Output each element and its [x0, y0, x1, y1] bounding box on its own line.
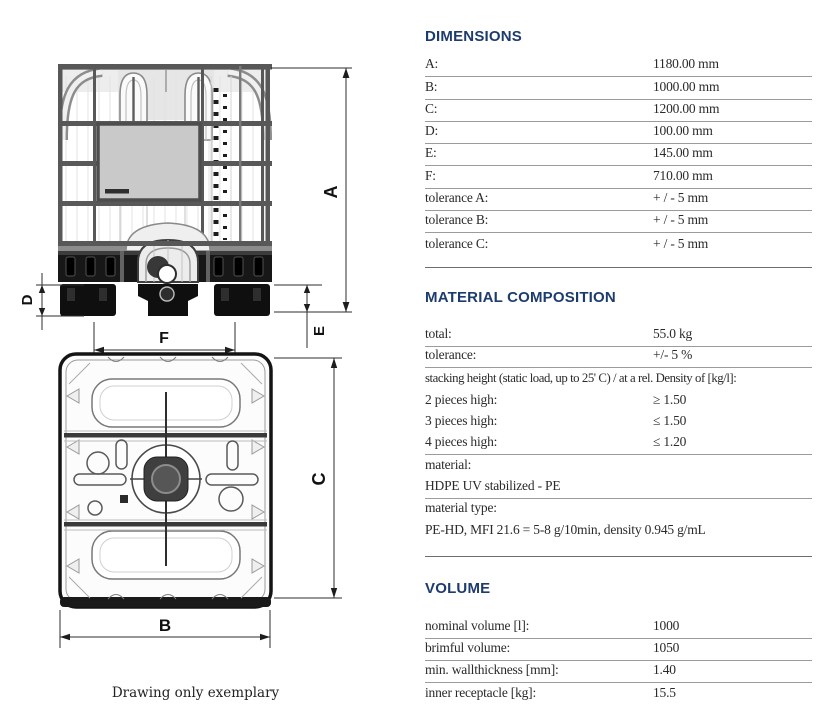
spec-row: 4 pieces high:≤ 1.20 — [425, 433, 812, 455]
row-label: 4 pieces high: — [425, 434, 497, 450]
row-label: total: — [425, 326, 452, 342]
row-label: tolerance C: — [425, 236, 488, 252]
row-label: nominal volume [l]: — [425, 618, 529, 634]
row-value: + / - 5 mm — [653, 236, 708, 252]
row-label: 3 pieces high: — [425, 413, 497, 429]
spec-row: A:1180.00 mm — [425, 55, 812, 77]
row-label: D: — [425, 123, 438, 139]
row-label: material type: — [425, 500, 497, 516]
spec-row: tolerance:+/- 5 % — [425, 347, 812, 369]
section-divider — [425, 267, 812, 268]
spec-row: total:55.0 kg — [425, 325, 812, 347]
ibc-top-view — [60, 354, 271, 607]
row-label: E: — [425, 145, 437, 161]
section-volume: VOLUME nominal volume [l]:1000 brimful v… — [425, 580, 812, 705]
spec-row: E:145.00 mm — [425, 144, 812, 166]
row-label: B: — [425, 79, 437, 95]
spec-row: material type: — [425, 499, 812, 521]
row-label: PE-HD, MFI 21.6 = 5-8 g/10min, density 0… — [425, 522, 706, 538]
row-value: 55.0 kg — [653, 326, 692, 342]
row-label: C: — [425, 101, 437, 117]
row-value: + / - 5 mm — [653, 212, 708, 228]
spec-row: C:1200.00 mm — [425, 100, 812, 122]
label-plate — [98, 124, 200, 200]
pallet-feet — [60, 284, 270, 316]
row-value: 1180.00 mm — [653, 56, 719, 72]
row-value: ≤ 1.20 — [653, 434, 686, 450]
row-value: 100.00 mm — [653, 123, 713, 139]
row-value: +/- 5 % — [653, 347, 692, 363]
drawing-caption: Drawing only exemplary — [58, 685, 333, 701]
section-title-material: MATERIAL COMPOSITION — [425, 289, 812, 306]
row-label: tolerance B: — [425, 212, 488, 228]
spec-row: brimful volume:1050 — [425, 639, 812, 661]
dim-label-A: A — [321, 186, 341, 199]
spec-row: tolerance B:+ / - 5 mm — [425, 211, 812, 233]
row-label: 2 pieces high: — [425, 392, 497, 408]
spec-row: PE-HD, MFI 21.6 = 5-8 g/10min, density 0… — [425, 520, 812, 542]
spec-row: 2 pieces high:≥ 1.50 — [425, 390, 812, 412]
spec-row: 3 pieces high:≤ 1.50 — [425, 412, 812, 434]
row-value: 1050 — [653, 640, 679, 656]
row-value: 1.40 — [653, 662, 676, 678]
row-label: stacking height (static load, up to 25' … — [425, 371, 736, 386]
valve-knob — [158, 265, 176, 283]
row-value: ≤ 1.50 — [653, 413, 686, 429]
row-label: tolerance A: — [425, 190, 488, 206]
spec-row: D:100.00 mm — [425, 122, 812, 144]
row-label: A: — [425, 56, 438, 72]
row-label: inner receptacle [kg]: — [425, 685, 536, 701]
brand-mark — [105, 189, 129, 194]
section-title-dimensions: DIMENSIONS — [425, 28, 812, 45]
row-label: material: — [425, 457, 471, 473]
row-value: 15.5 — [653, 685, 676, 701]
spec-row: nominal volume [l]:1000 — [425, 617, 812, 639]
section-divider — [425, 556, 812, 557]
section-title-volume: VOLUME — [425, 580, 812, 597]
dim-label-E: E — [311, 326, 328, 336]
row-value: 1000.00 mm — [653, 79, 719, 95]
row-label: tolerance: — [425, 347, 476, 363]
dim-label-F: F — [159, 330, 169, 347]
dim-label-C: C — [309, 473, 329, 486]
spec-row: HDPE UV stabilized - PE — [425, 477, 812, 499]
dimensions-table: A:1180.00 mm B:1000.00 mm C:1200.00 mm D… — [425, 55, 812, 256]
row-value: 1000 — [653, 618, 679, 634]
row-label: F: — [425, 168, 436, 184]
spec-row: B:1000.00 mm — [425, 77, 812, 99]
row-label: min. wallthickness [mm]: — [425, 662, 559, 678]
spec-row: tolerance C:+ / - 5 mm — [425, 233, 812, 255]
spec-row: F:710.00 mm — [425, 166, 812, 188]
valve-assembly — [138, 240, 198, 283]
spec-row: min. wallthickness [mm]:1.40 — [425, 661, 812, 683]
row-label: HDPE UV stabilized - PE — [425, 478, 560, 494]
spec-row: tolerance A:+ / - 5 mm — [425, 189, 812, 211]
ibc-datasheet-page: A D E F — [0, 0, 829, 719]
spec-row: stacking height (static load, up to 25' … — [425, 368, 812, 390]
section-material-composition: MATERIAL COMPOSITION total:55.0 kg toler… — [425, 289, 812, 542]
row-value: + / - 5 mm — [653, 190, 708, 206]
technical-drawing: A D E F — [0, 0, 420, 719]
row-value: 710.00 mm — [653, 168, 713, 184]
section-dimensions: DIMENSIONS A:1180.00 mm B:1000.00 mm C:1… — [425, 28, 812, 256]
dim-label-D: D — [19, 294, 36, 305]
row-value: 1200.00 mm — [653, 101, 719, 117]
dim-label-B: B — [159, 616, 171, 635]
spec-row: inner receptacle [kg]:15.5 — [425, 683, 812, 705]
row-value: 145.00 mm — [653, 145, 713, 161]
volume-table: nominal volume [l]:1000 brimful volume:1… — [425, 617, 812, 705]
material-table: total:55.0 kg tolerance:+/- 5 % stacking… — [425, 325, 812, 542]
spec-row: material: — [425, 455, 812, 477]
row-label: brimful volume: — [425, 640, 510, 656]
row-value: ≥ 1.50 — [653, 392, 686, 408]
ibc-front-view — [58, 64, 272, 316]
